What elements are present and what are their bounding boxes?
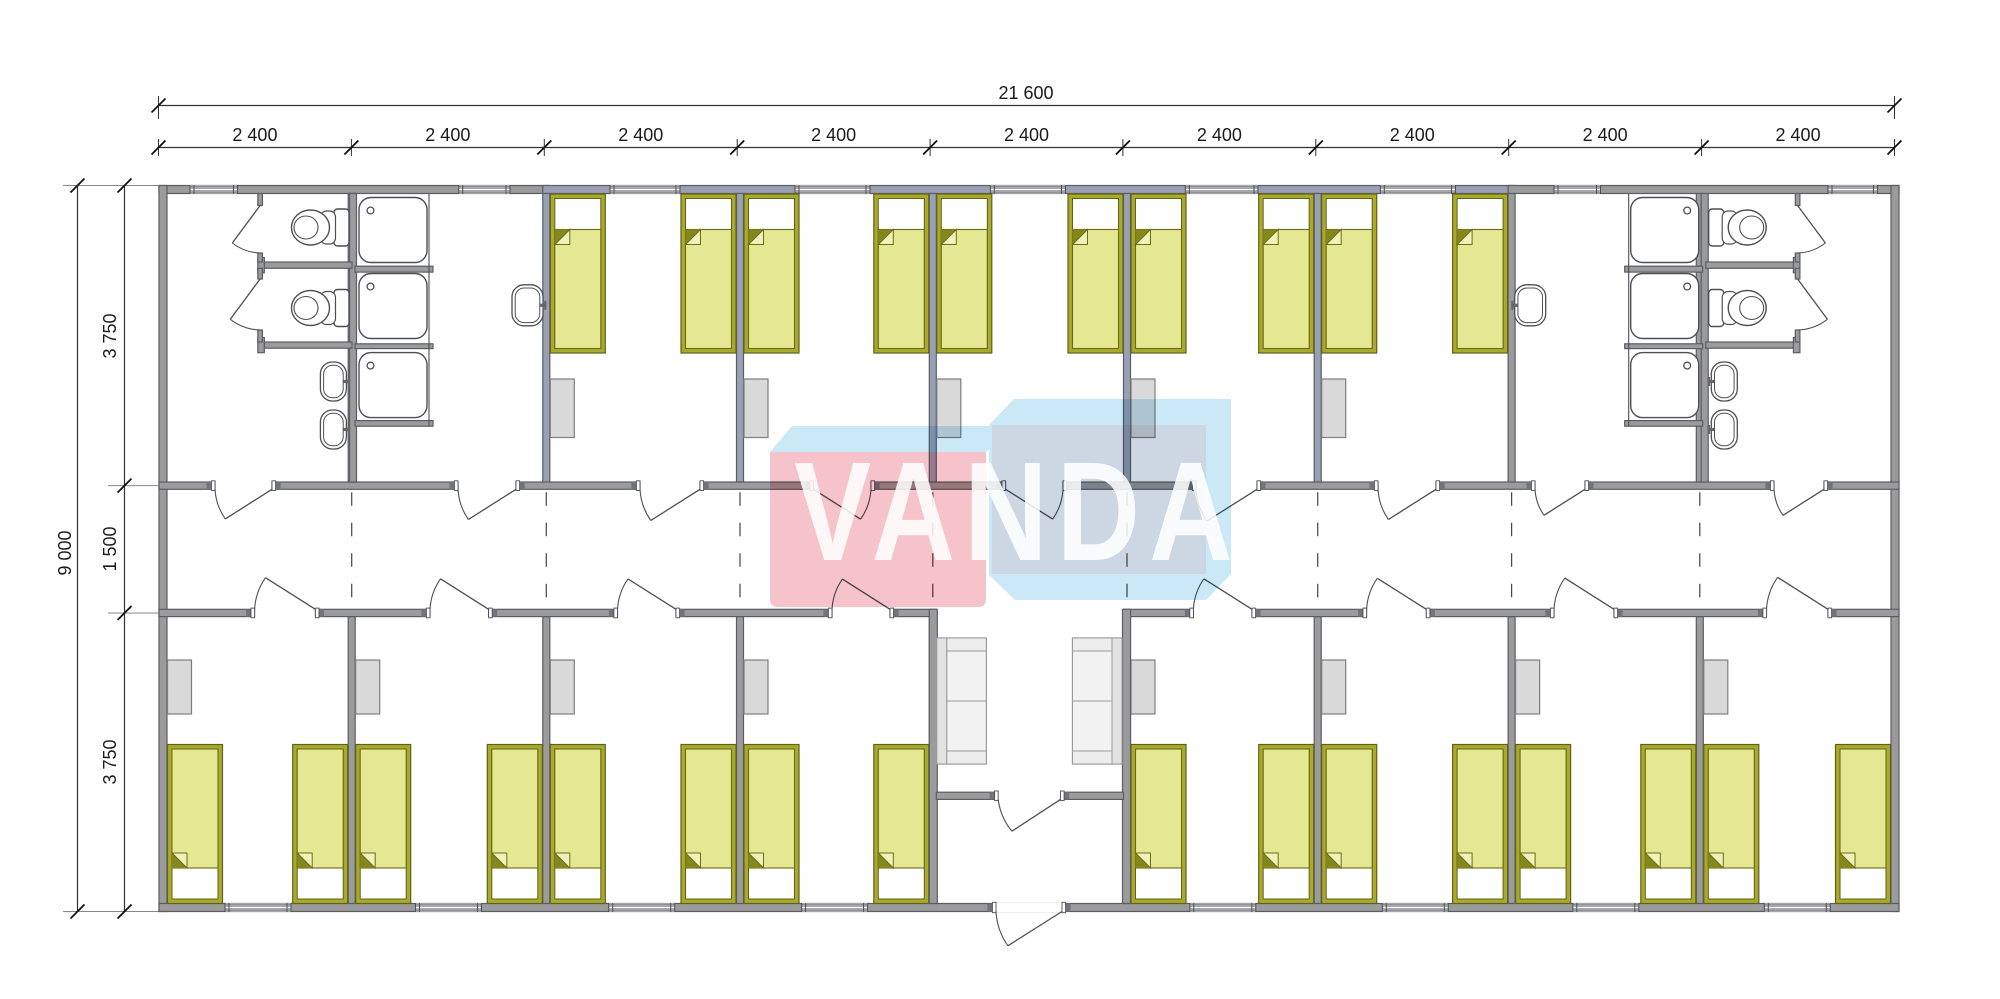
svg-text:2 400: 2 400 — [618, 125, 663, 145]
svg-text:2 400: 2 400 — [1004, 125, 1049, 145]
svg-text:1 500: 1 500 — [100, 526, 120, 571]
svg-text:2 400: 2 400 — [1776, 125, 1821, 145]
svg-text:2 400: 2 400 — [1390, 125, 1435, 145]
svg-text:21 600: 21 600 — [998, 83, 1053, 103]
svg-text:VANDA: VANDA — [794, 433, 1242, 590]
svg-text:3 750: 3 750 — [100, 739, 120, 784]
svg-text:9 000: 9 000 — [55, 530, 75, 575]
svg-text:3 750: 3 750 — [100, 313, 120, 358]
svg-text:2 400: 2 400 — [811, 125, 856, 145]
svg-text:2 400: 2 400 — [1583, 125, 1628, 145]
svg-text:2 400: 2 400 — [425, 125, 470, 145]
svg-text:2 400: 2 400 — [232, 125, 277, 145]
svg-text:2 400: 2 400 — [1197, 125, 1242, 145]
